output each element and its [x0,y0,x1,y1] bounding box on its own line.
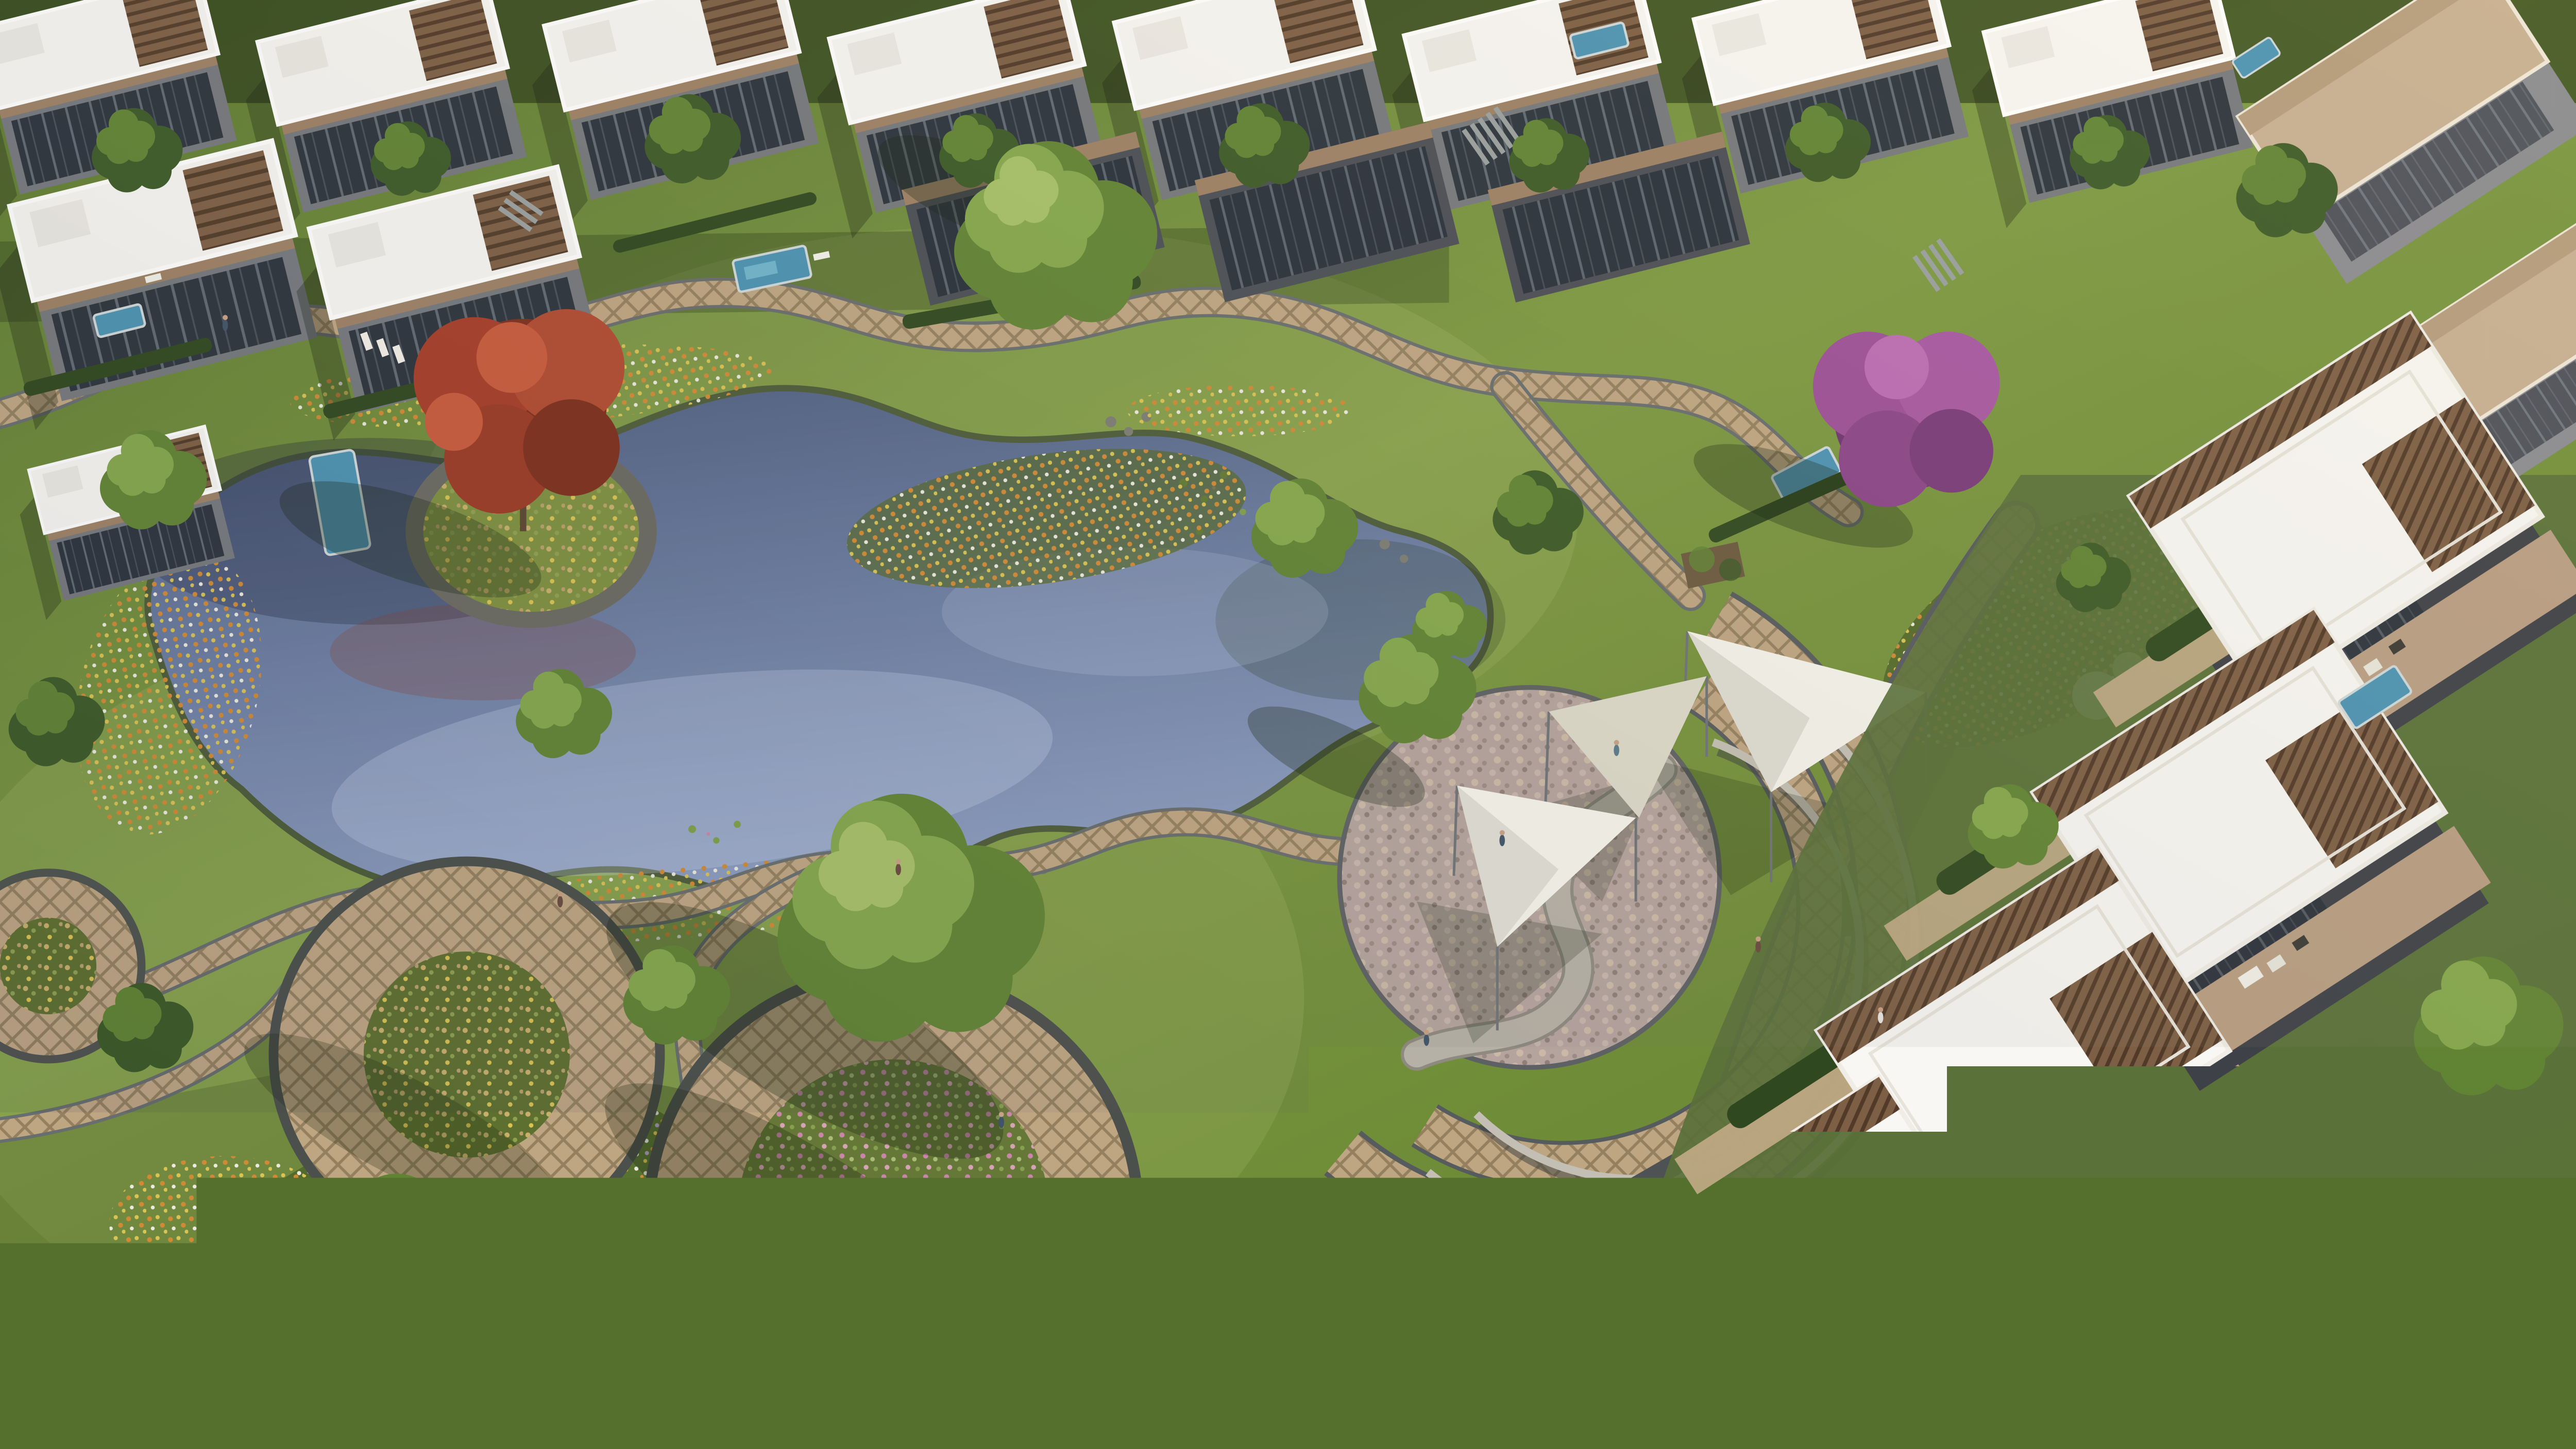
render-canvas [0,0,2576,1449]
aerial-render-scene [0,0,2576,1449]
light-grade-overlay [0,0,2576,1449]
